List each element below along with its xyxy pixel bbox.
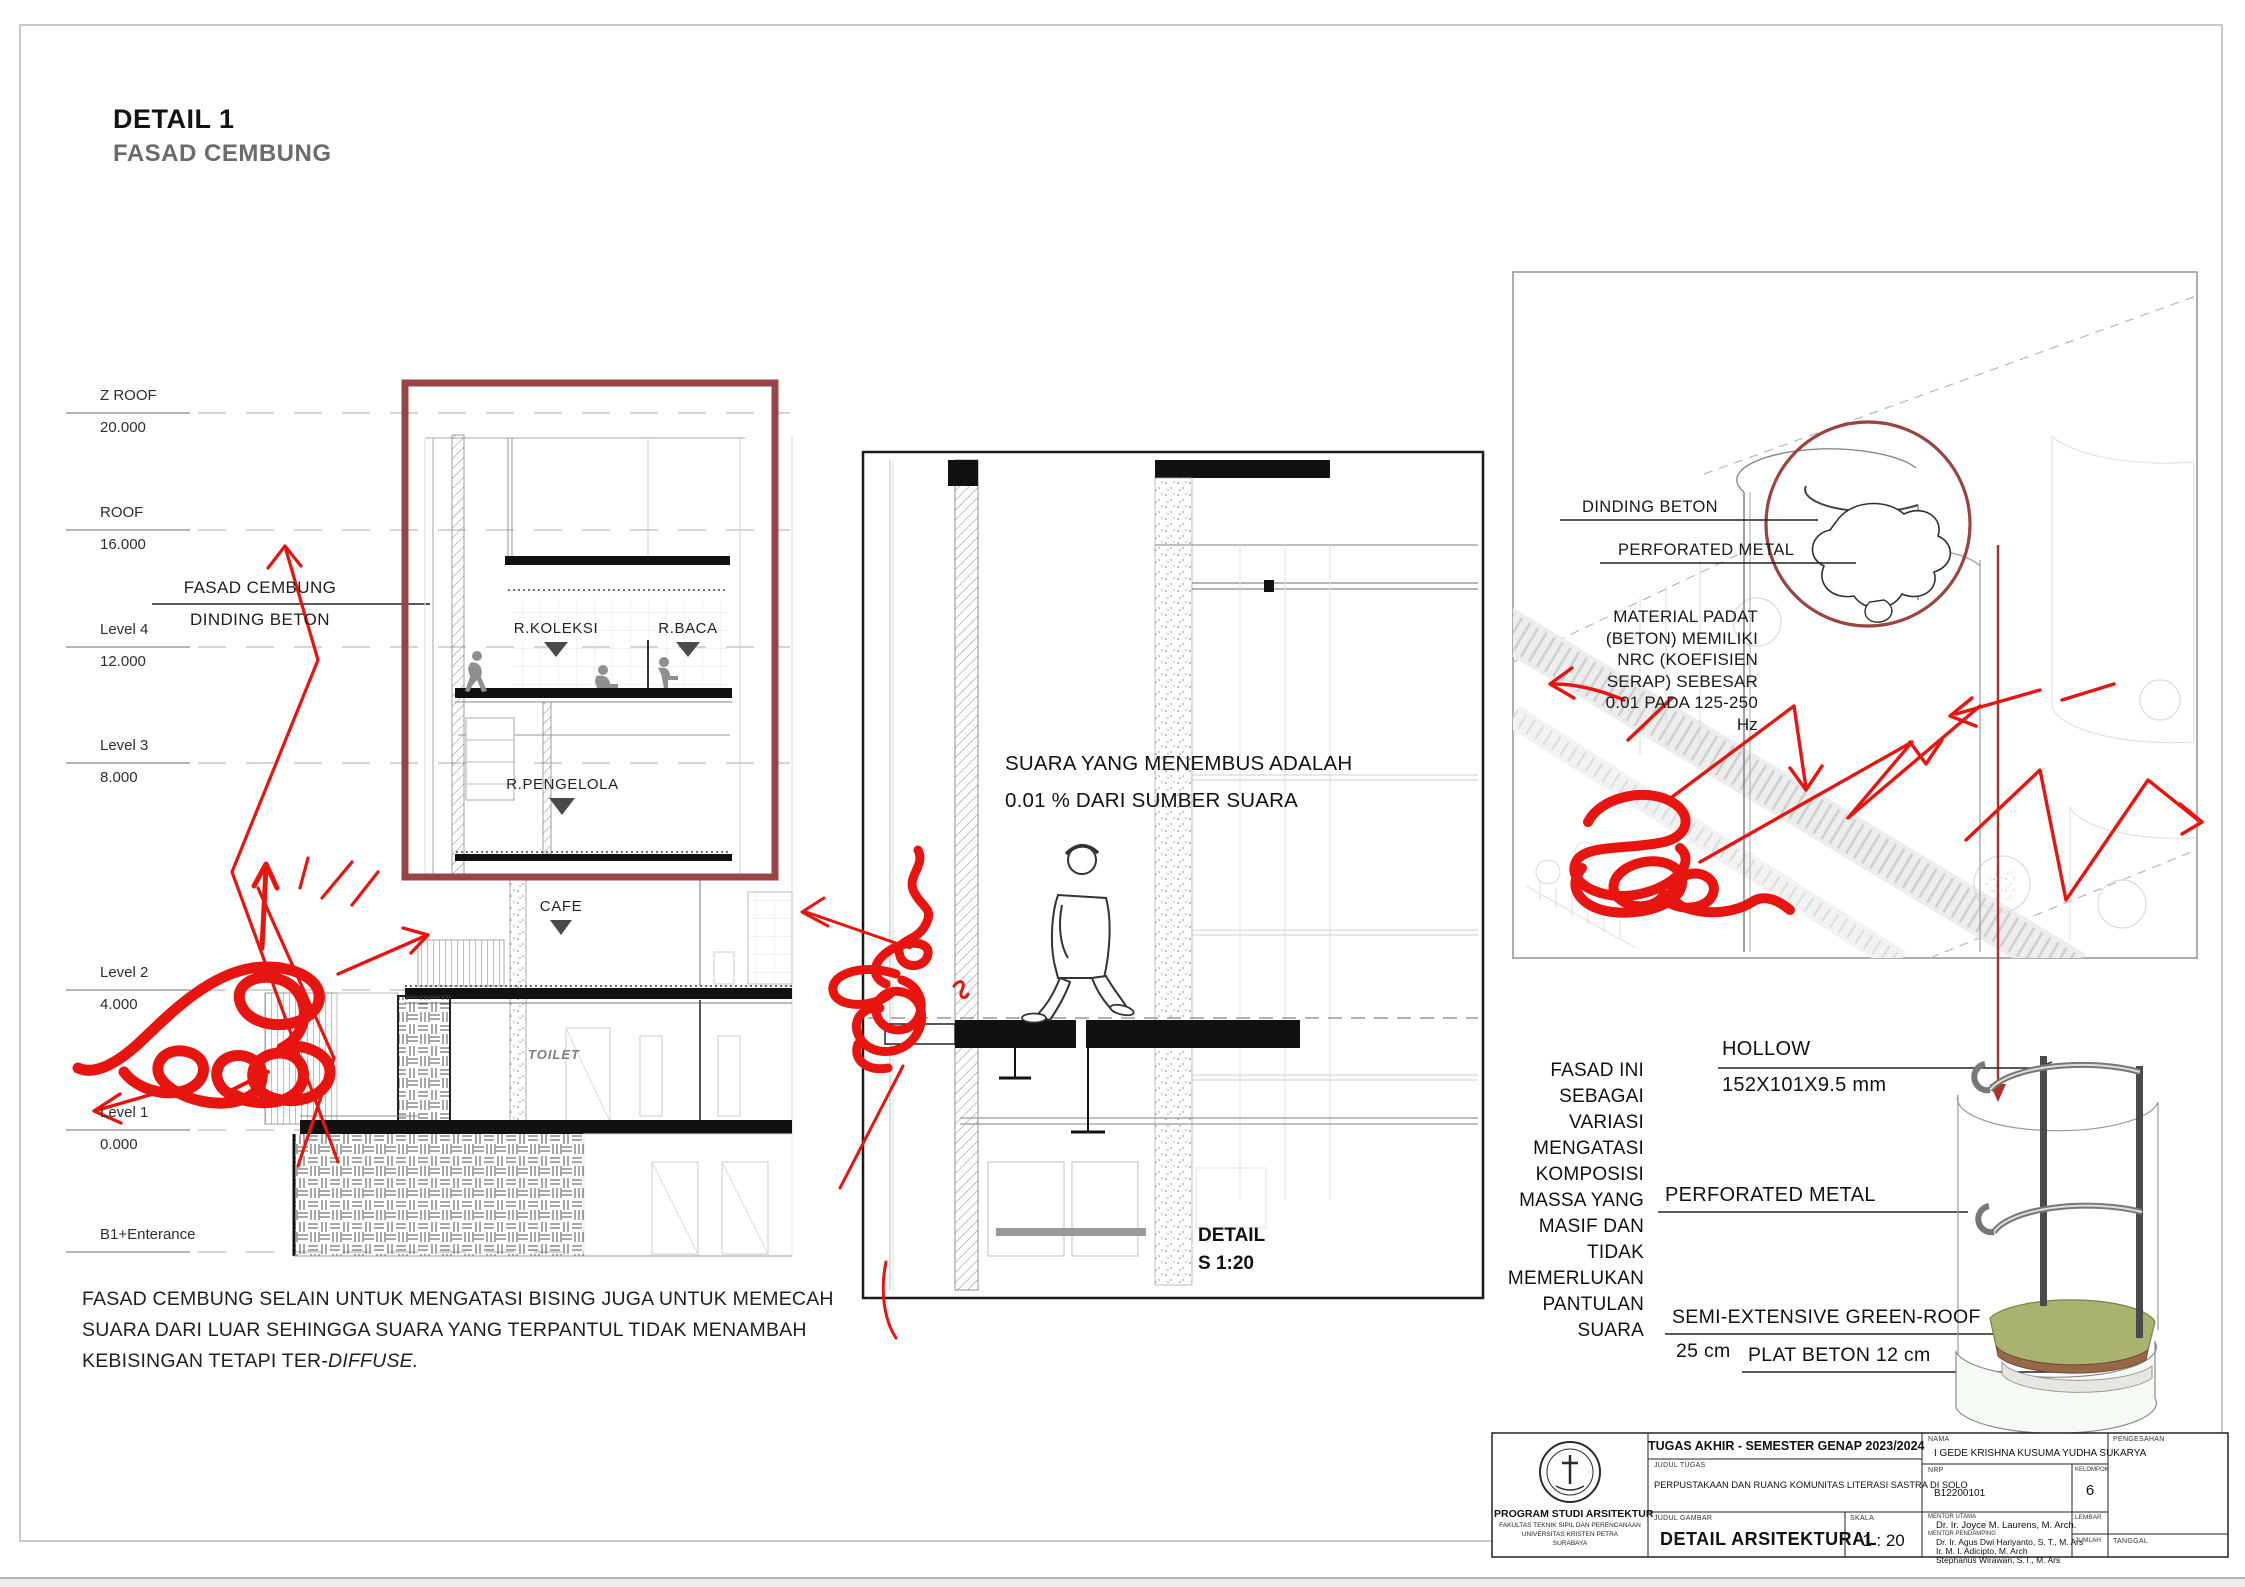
level-elev-roof: 16.000 <box>100 536 146 553</box>
room-label-koleksi: R.KOLEKSI <box>500 620 612 637</box>
room-label-baca: R.BACA <box>638 620 738 637</box>
skala-label: SKALA <box>1850 1515 1874 1523</box>
universitas: UNIVERSITAS KRISTEN PETRA <box>1494 1531 1646 1540</box>
level-elev-4: 12.000 <box>100 653 146 670</box>
level-elev-1: 0.000 <box>100 1136 138 1153</box>
pengesahan-label: PENGESAHAN <box>2113 1436 2165 1444</box>
page-subtitle: FASAD CEMBUNG <box>113 140 332 168</box>
caption-line1: FASAD CEMBUNG SELAIN UNTUK MENGATASI BIS… <box>82 1288 834 1310</box>
judul-tugas-value: PERPUSTAKAAN DAN RUANG KOMUNITAS LITERAS… <box>1654 1480 1918 1491</box>
page-title: DETAIL 1 <box>113 104 235 135</box>
detail-note-line1: SUARA YANG MENEMBUS ADALAH <box>1005 752 1352 776</box>
judul-tugas-label: JUDUL TUGAS <box>1654 1462 1706 1470</box>
component-3d-drawing <box>1658 1056 2158 1433</box>
kelompok-label: KELOMPOK <box>2075 1467 2109 1474</box>
level-elev-2: 4.000 <box>100 996 138 1013</box>
level-name-3: Level 3 <box>100 737 148 754</box>
label-plat-beton: PLAT BETON 12 cm <box>1748 1344 1931 1366</box>
room-label-cafe: CAFE <box>516 898 606 915</box>
iso-material-note: MATERIAL PADAT (BETON) MEMILIKI NRC (KOE… <box>1560 606 1758 735</box>
facade-annotation-line1: FASAD CEMBUNG <box>150 578 370 598</box>
caption-line2: SUARA DARI LUAR SEHINGGA SUARA YANG TERP… <box>82 1319 807 1341</box>
skala-value: 1 : 20 <box>1845 1531 1922 1551</box>
left-section-drawing <box>66 413 792 1256</box>
nrp-label: NRP <box>1928 1467 1944 1475</box>
label-greenroof: SEMI-EXTENSIVE GREEN-ROOF <box>1672 1306 1981 1328</box>
iso-label-dinding-beton: DINDING BETON <box>1582 498 1718 517</box>
detail-title: DETAIL <box>1198 1225 1265 1247</box>
program-studi: PROGRAM STUDI ARSITEKTUR <box>1494 1508 1646 1520</box>
judul-gambar-label: JUDUL GAMBAR <box>1654 1515 1712 1523</box>
level-name-2: Level 2 <box>100 964 148 981</box>
kelompok-value: 6 <box>2072 1482 2108 1499</box>
level-elev-3: 8.000 <box>100 769 138 786</box>
iso-label-perforated-metal: PERFORATED METAL <box>1618 541 1794 560</box>
room-label-pengelola: R.PENGELOLA <box>495 776 630 793</box>
facade-annotation-line2: DINDING BETON <box>150 610 370 630</box>
kota: SURABAYA <box>1494 1540 1646 1549</box>
room-label-toilet: TOILET <box>528 1048 580 1063</box>
level-elev-zroof: 20.000 <box>100 419 146 436</box>
mentor-utama-value: Dr. Ir. Joyce M. Laurens, M. Arch. <box>1936 1521 2076 1531</box>
caption-italic: DIFFUSE. <box>328 1350 418 1372</box>
lembar-label: LEMBAR <box>2075 1514 2102 1521</box>
label-hollow-size: 152X101X9.5 mm <box>1722 1074 1886 1097</box>
level-name-zroof: Z ROOF <box>100 387 157 404</box>
fakultas: FAKULTAS TEKNIK SIPIL DAN PERENCANAAN <box>1494 1522 1646 1531</box>
nrp-value: B12200101 <box>1934 1488 1985 1500</box>
nama-value: I GEDE KRISHNA KUSUMA YUDHA SUKARYA <box>1934 1448 2146 1460</box>
level-name-1: Level 1 <box>100 1104 148 1121</box>
label-perforated-2: PERFORATED METAL <box>1665 1184 1876 1207</box>
titleblock-header: TUGAS AKHIR - SEMESTER GENAP 2023/2024 <box>1648 1439 1922 1453</box>
label-hollow: HOLLOW <box>1722 1038 1810 1061</box>
component-fasad-note: FASAD INI SEBAGAI VARIASI MENGATASI KOMP… <box>1498 1058 1644 1344</box>
sheet: DETAIL 1 FASAD CEMBUNG Z ROOF 20.000 ROO… <box>0 0 2245 1587</box>
mentor-pendamping-3: Stephanus Wirawan, S.T., M. Ars <box>1936 1556 2060 1566</box>
detail-section-drawing <box>863 452 1483 1298</box>
level-name-4: Level 4 <box>100 621 148 638</box>
tanggal-label: TANGGAL <box>2113 1538 2148 1546</box>
label-greenroof-size: 25 cm <box>1676 1340 1731 1362</box>
jumlah-label: JUMLAH <box>2075 1537 2101 1544</box>
detail-scale: S 1:20 <box>1198 1253 1254 1275</box>
level-name-roof: ROOF <box>100 504 143 521</box>
nama-label: NAMA <box>1928 1436 1949 1444</box>
detail-note-line2: 0.01 % DARI SUMBER SUARA <box>1005 789 1298 813</box>
level-name-b1: B1+Enterance <box>100 1226 196 1243</box>
caption-line3: KEBISINGAN TETAPI TER-DIFFUSE. <box>82 1350 418 1372</box>
